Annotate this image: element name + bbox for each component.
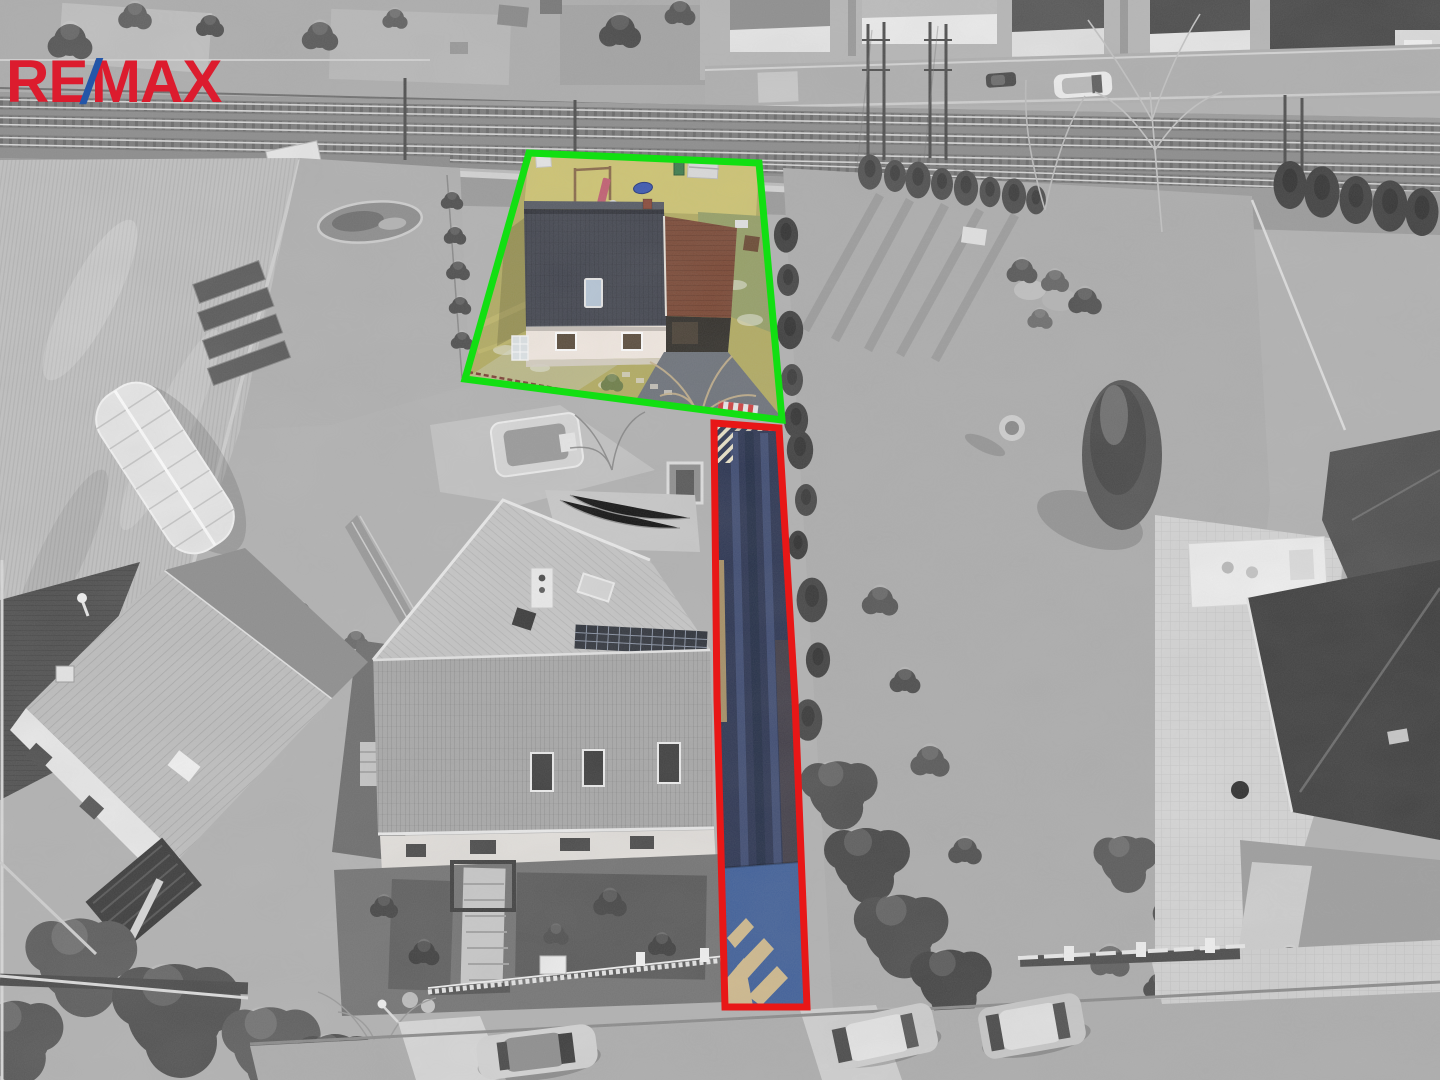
logo-max: MAX — [91, 52, 221, 112]
aerial-property-photo: RE/MAX — [0, 0, 1440, 1080]
logo-re: RE — [6, 52, 87, 112]
aerial-photo-canvas — [0, 0, 1440, 1080]
logo-slash: / — [81, 51, 97, 113]
remax-logo: RE/MAX — [6, 52, 221, 112]
